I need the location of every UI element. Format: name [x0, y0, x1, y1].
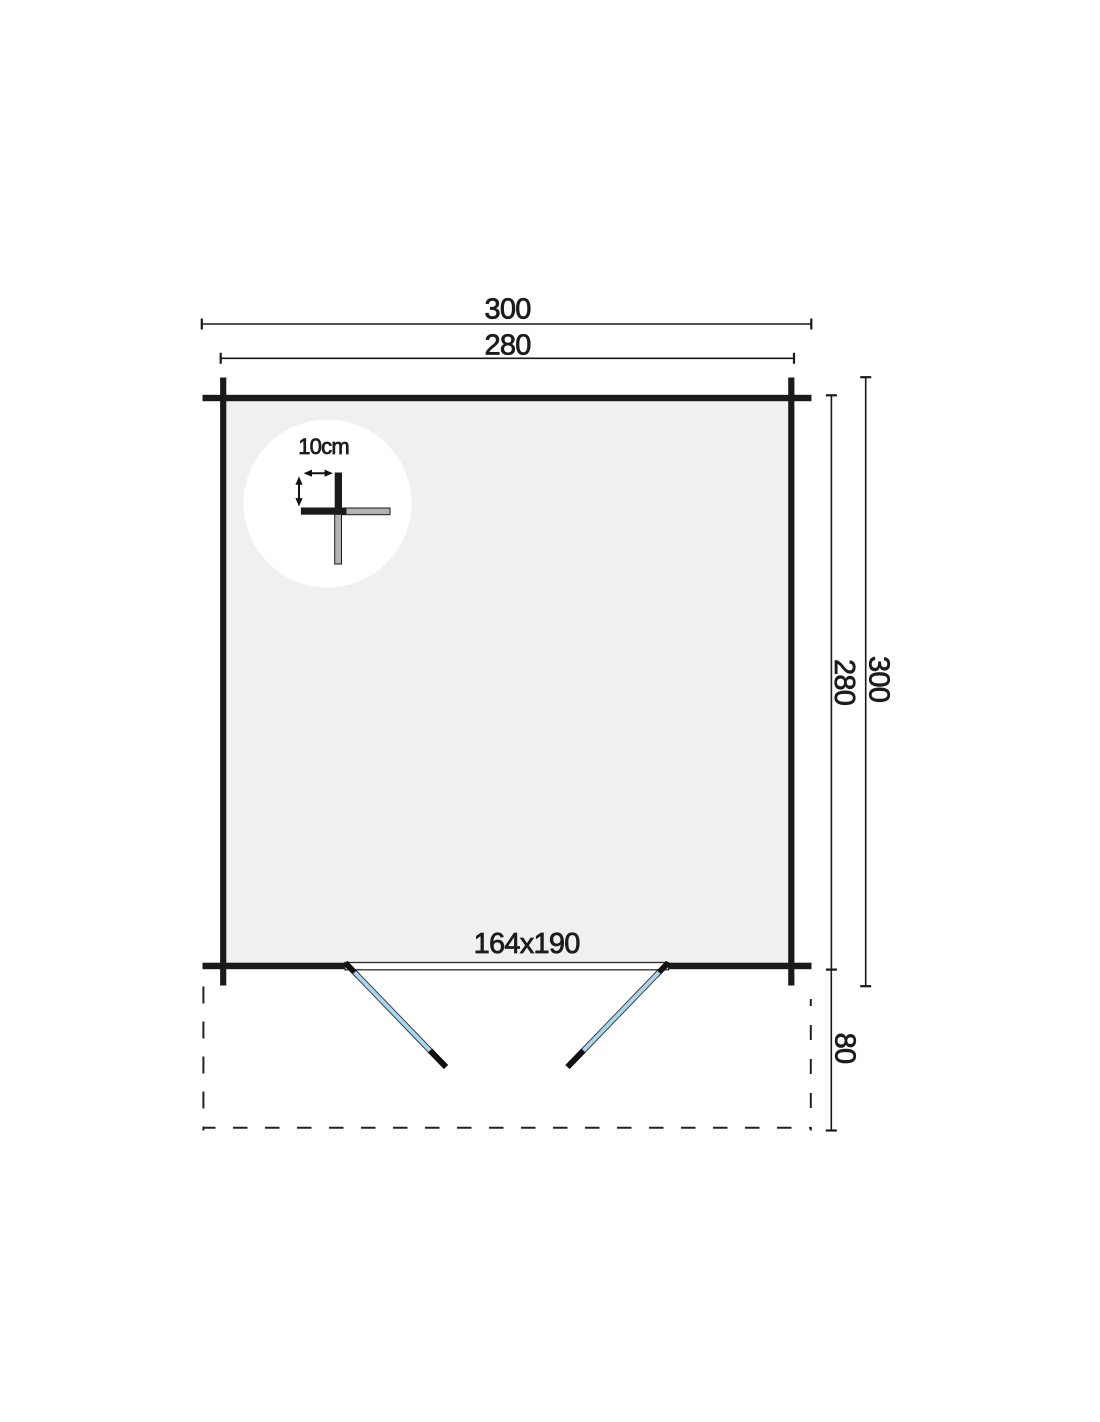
svg-text:10cm: 10cm — [298, 434, 349, 459]
svg-text:164x190: 164x190 — [474, 928, 580, 960]
svg-text:280: 280 — [485, 330, 531, 362]
svg-text:300: 300 — [485, 294, 531, 326]
svg-text:80: 80 — [829, 1033, 861, 1064]
svg-text:280: 280 — [828, 659, 860, 705]
svg-text:300: 300 — [863, 656, 895, 702]
